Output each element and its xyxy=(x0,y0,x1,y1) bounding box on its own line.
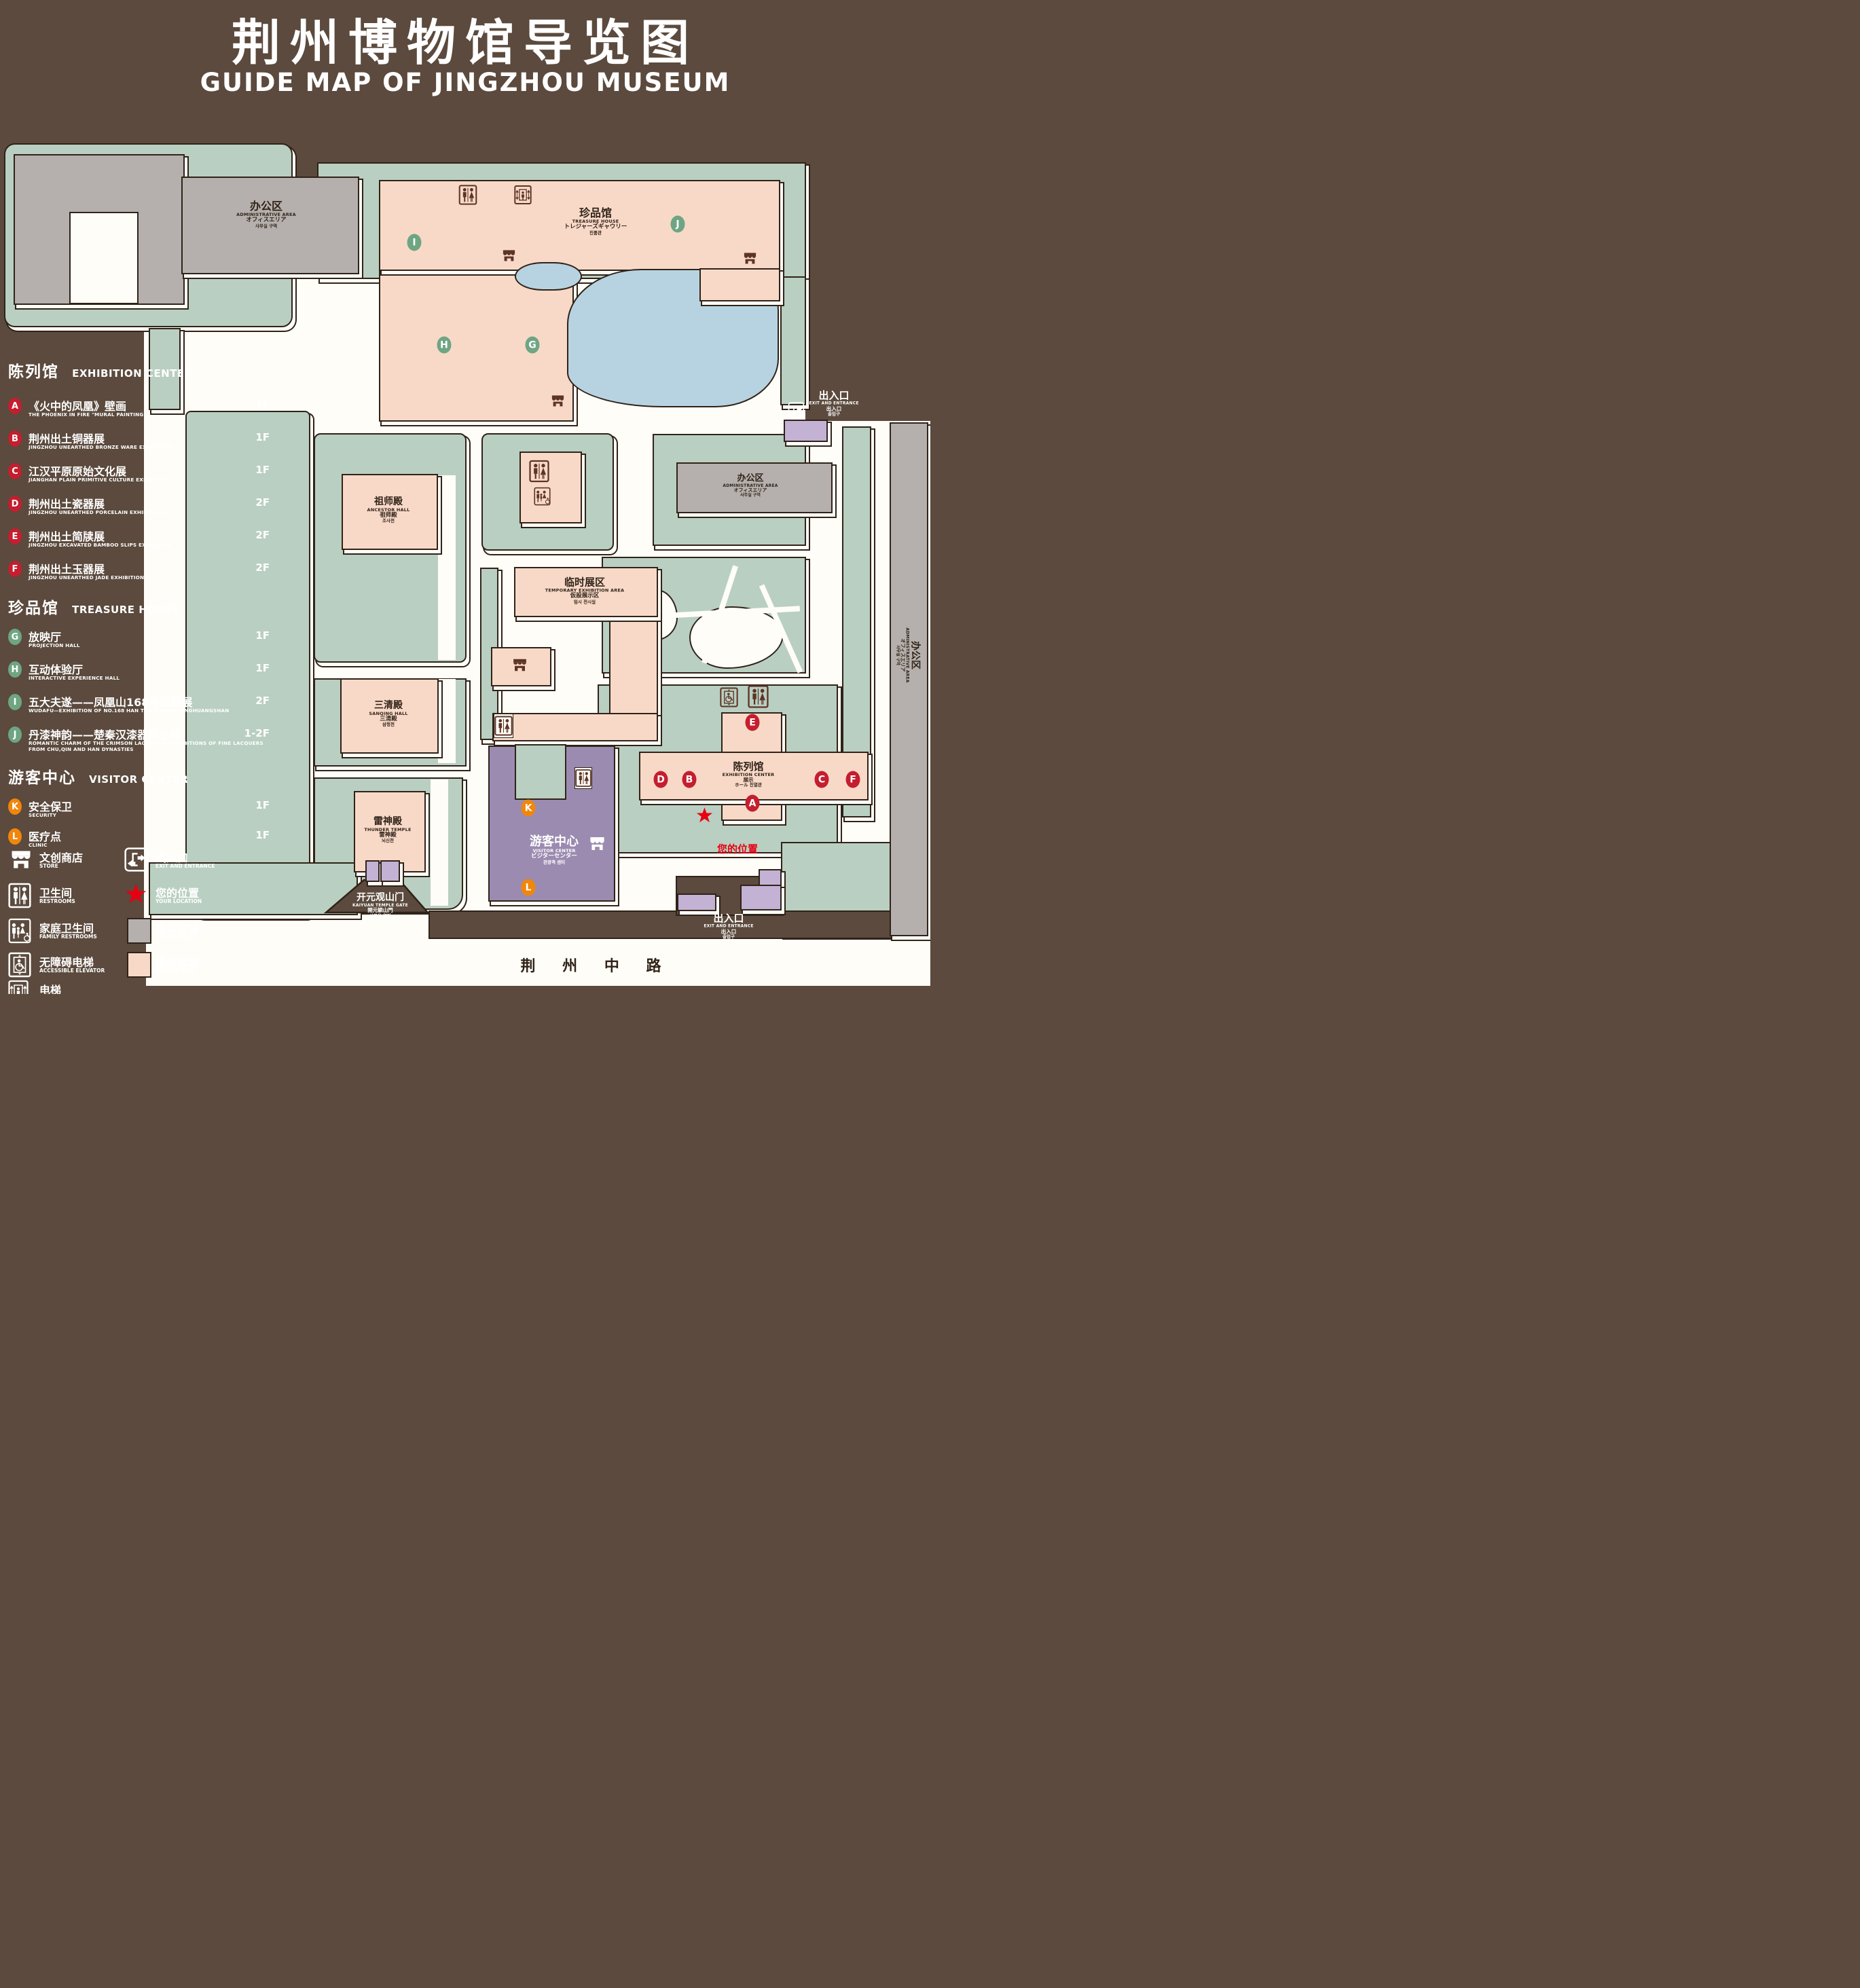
guide-map-poster: 荆州博物馆导览图 GUIDE MAP OF JINGZHOU MUSEUM 办公… xyxy=(0,0,930,994)
map-marker-i: I xyxy=(407,234,422,251)
map-marker-g: G xyxy=(526,337,540,354)
gate-pillar-west xyxy=(365,860,380,882)
store-icon xyxy=(742,250,758,267)
page-title: 荆州博物馆导览图 xyxy=(0,3,930,74)
sanqing-hall-label: 三清殿 SANQING HALL 三清殿 삼청전 xyxy=(369,701,407,728)
road-label: 荆 州 中 路 xyxy=(521,954,672,976)
restrooms-icon xyxy=(494,714,513,738)
corridor-ancestor xyxy=(438,475,456,660)
temporary-area-label: 临时展区 TEMPORARY EXHIBITION AREA 仮設展示区 임시 … xyxy=(545,577,625,605)
northeast-exit-label: 出入口 EXIT AND ENTRANCE 出入口 출입구 xyxy=(809,390,858,416)
map-marker-c: C xyxy=(815,771,829,788)
elevator-icon xyxy=(8,980,29,994)
map-marker-h: H xyxy=(437,337,452,354)
exhibition-center-label: 陈列馆 EXHIBITION CENTER 展示 ホール 진열관 xyxy=(723,761,775,788)
corridor-sanqing xyxy=(438,679,456,763)
treasure-house-east-wing xyxy=(699,268,780,301)
restrooms-icon xyxy=(8,883,31,908)
admin-far-east-label: 办公区 ADMINISTRATIVE AREA オフィスエリア 사무실 구역 xyxy=(895,627,920,682)
admin-courtyard xyxy=(69,212,139,304)
section-treasure-house: 珍品馆 TREASURE HOUSE xyxy=(8,595,180,618)
map-marker-b: B xyxy=(682,771,697,788)
temporary-area-south-wing xyxy=(492,713,658,741)
map-marker-k: K xyxy=(522,800,536,817)
family-restrooms-icon xyxy=(534,487,551,506)
restrooms-icon xyxy=(458,185,477,205)
lawn-east-hedge xyxy=(780,276,806,405)
northeast-gate-block xyxy=(784,420,828,442)
accessible-elevator-icon xyxy=(8,952,31,978)
south-exit-block-east xyxy=(740,885,782,910)
lake-bay xyxy=(515,262,582,291)
location-star-icon xyxy=(124,883,147,906)
store-icon xyxy=(511,656,528,674)
admin-east-label: 办公区 ADMINISTRATIVE AREA オフィスエリア 사무실 구역 xyxy=(723,474,778,498)
page-subtitle: GUIDE MAP OF JINGZHOU MUSEUM xyxy=(0,68,930,97)
map-marker-l: L xyxy=(522,879,536,896)
store-icon xyxy=(8,847,34,872)
map-marker-a: A xyxy=(746,795,760,812)
your-location-star-icon xyxy=(695,807,714,824)
exit-icon xyxy=(124,847,149,872)
ancestor-hall-label: 祖师殿 ANCESTOR HALL 祖师殿 조사전 xyxy=(367,497,410,524)
section-visitor-center: 游客中心 VISITOR CENTER xyxy=(8,765,188,788)
thunder-temple-label: 雷神殿 THUNDER TEMPLE 雷神殿 뇌신전 xyxy=(364,817,411,844)
section-title-en: EXHIBITION CENTER xyxy=(72,367,193,380)
section-exhibition-center: 陈列馆 EXHIBITION CENTER xyxy=(8,358,193,382)
visitor-center-notch xyxy=(515,744,566,800)
map-marker-j: J xyxy=(671,216,685,233)
display-area-swatch xyxy=(127,952,151,978)
accessible-elevator-icon xyxy=(720,686,738,709)
gate-pillar-east xyxy=(380,860,400,882)
map-marker-f: F xyxy=(846,771,860,788)
store-icon xyxy=(588,834,606,853)
gate-label: 开元观山门 KAIYUAN TEMPLE GATE 開元観山門 산문을 열다 xyxy=(352,893,408,919)
map-marker-d: D xyxy=(654,771,668,788)
restrooms-icon xyxy=(529,460,549,483)
elevator-icon xyxy=(514,185,532,205)
lawn-west-column xyxy=(185,411,310,916)
store-icon xyxy=(550,392,566,409)
south-exit-block-west xyxy=(677,894,716,911)
treasure-house-south-wing xyxy=(379,268,574,422)
treasure-house-label: 珍品馆 TREASURE HOUSE トレジャーズギャウリー 진품관 xyxy=(564,207,627,236)
marker-badge: A xyxy=(8,398,22,414)
section-title-zh: 陈列馆 xyxy=(8,363,59,381)
your-location-label: 您的位置 xyxy=(717,842,758,856)
restrooms-icon xyxy=(575,767,592,789)
south-exit-label: 出入口 EXIT AND ENTRANCE 出入口 출입구 xyxy=(704,913,753,939)
exit-icon xyxy=(788,402,805,418)
admin-northwest-label: 办公区 ADMINISTRATIVE AREA オフィスエリア 사무실 구역 xyxy=(236,200,296,229)
office-area-swatch xyxy=(127,918,151,944)
restrooms-icon xyxy=(748,684,769,709)
map-marker-e: E xyxy=(746,714,760,731)
store-icon xyxy=(501,247,517,264)
visitor-center-label: 游客中心 VISITOR CENTER ビジターセンター 관광객 센터 xyxy=(530,835,579,865)
family-restrooms-icon xyxy=(8,918,31,944)
